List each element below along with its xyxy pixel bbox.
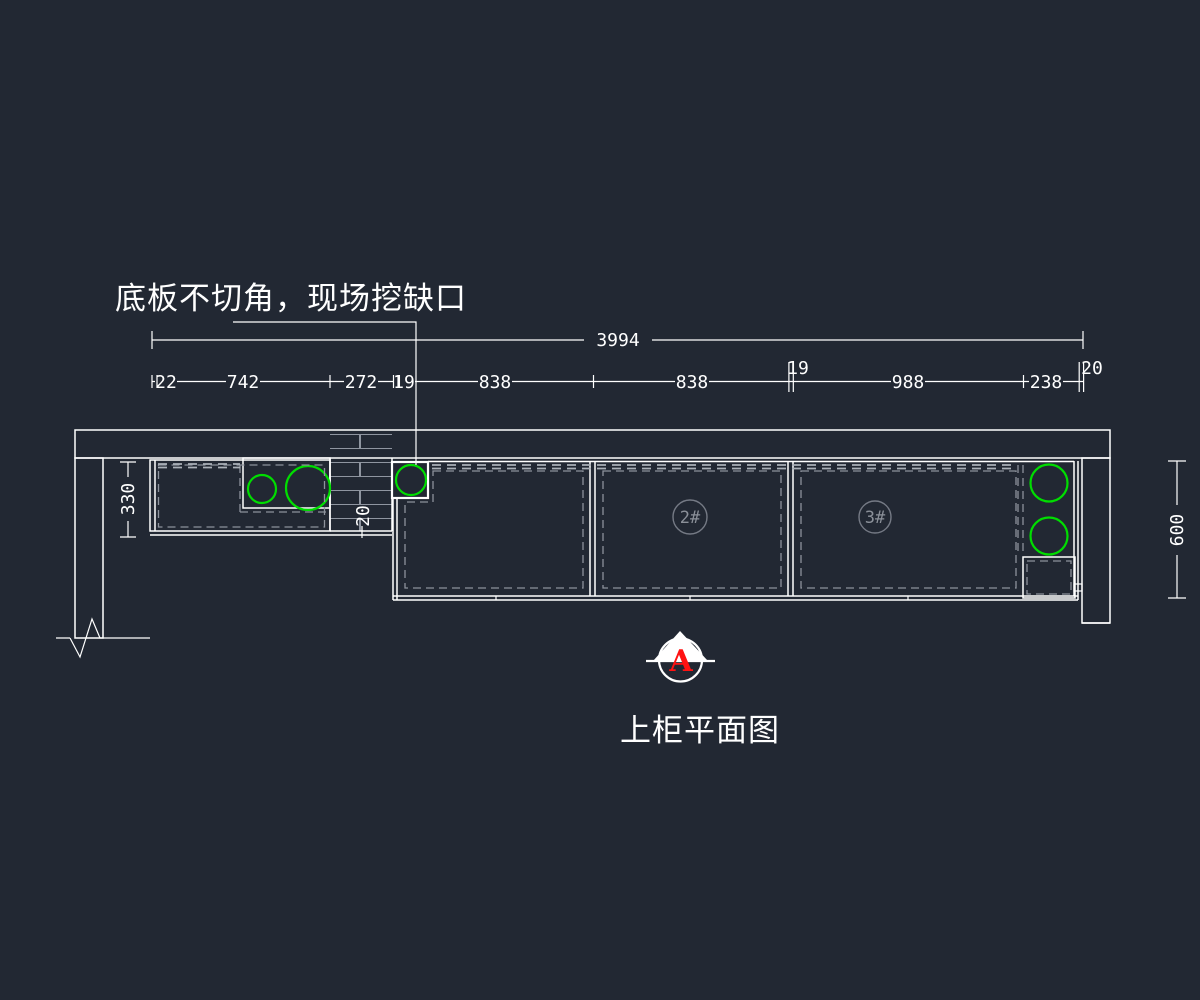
dim-seg-22: 22	[155, 372, 177, 393]
label-2-text: 2#	[680, 508, 701, 528]
note-text: 底板不切角，现场挖缺口	[115, 281, 467, 317]
cad-canvas: 2# 3# 底板不切角，现场挖缺口 3994 22 742 272 19 838…	[0, 0, 1200, 1000]
marker-letter: A	[668, 644, 693, 679]
dim-600-text: 600	[1167, 514, 1188, 547]
label-3-text: 3#	[865, 508, 886, 528]
dim-seg-19b: 19	[787, 358, 809, 379]
dim-seg-238: 238	[1030, 372, 1063, 393]
dim-seg-742: 742	[227, 372, 260, 393]
dim-330-text: 330	[118, 483, 139, 516]
dim-seg-20: 20	[1081, 358, 1103, 379]
dim-seg-838b: 838	[676, 372, 709, 393]
cabinet-plan-drawing: 2# 3# 底板不切角，现场挖缺口 3994 22 742 272 19 838…	[0, 0, 1200, 1000]
drawing-title: 上柜平面图	[620, 713, 780, 749]
canvas-background	[0, 0, 1200, 1000]
dim-seg-272: 272	[345, 372, 378, 393]
dim-seg-988: 988	[892, 372, 925, 393]
dim-seg-19a: 19	[393, 372, 415, 393]
dim-20-text: 20	[353, 505, 374, 527]
dim-overall-text: 3994	[596, 330, 639, 351]
dim-seg-838a: 838	[479, 372, 512, 393]
